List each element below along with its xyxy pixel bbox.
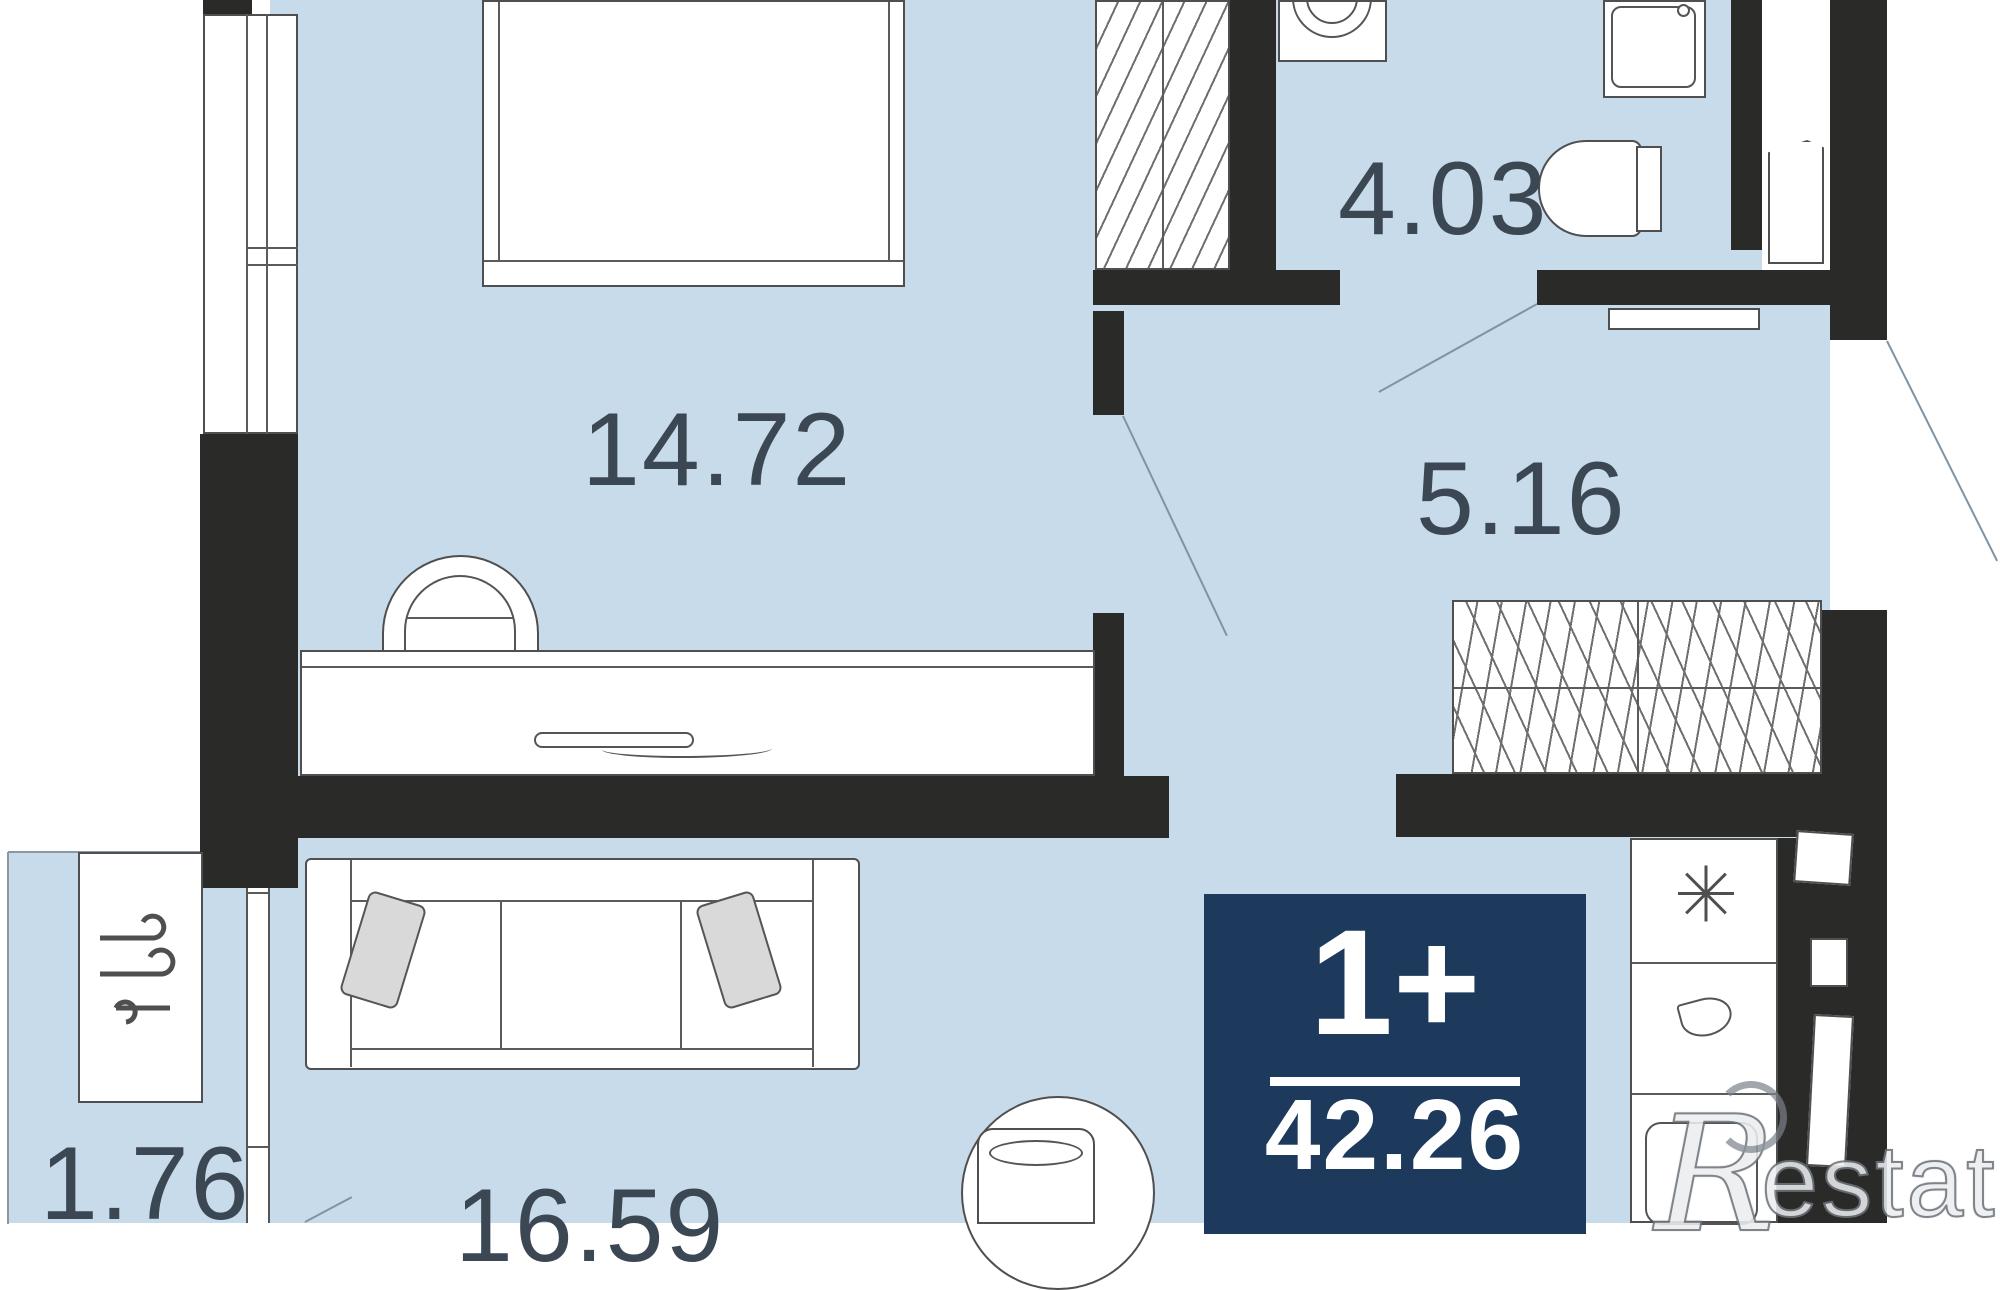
sofa-seat-divider	[680, 900, 682, 1050]
sofa-front-line	[350, 1048, 814, 1050]
frame-tick	[248, 1146, 268, 1148]
frame-tick	[248, 892, 268, 894]
window-frame-line	[246, 14, 248, 434]
badge-total-area: 42.26	[1204, 1085, 1586, 1185]
area-label-balcony: 1.76	[40, 1132, 250, 1236]
cabinet-panel	[1810, 938, 1848, 987]
area-label-living-kitchen: 16.59	[455, 1174, 725, 1278]
sofa-armrest-line	[812, 860, 814, 1067]
area-label-hallway: 5.16	[1416, 447, 1626, 551]
floor-plan: 14.72 4.03 5.16 1.76 16.59 1+ 42.26 Rest…	[0, 0, 2000, 1223]
toilet-tank	[1636, 146, 1662, 232]
window-frame-line	[266, 14, 268, 434]
watermark-swirl-icon	[1715, 1081, 1787, 1153]
washing-machine-icon	[1278, 0, 1387, 62]
sink-basin	[1611, 6, 1696, 88]
wall-segment	[1731, 0, 1762, 250]
desk-handle-curve	[602, 740, 772, 758]
watermark-restate: Restate	[1655, 1095, 2000, 1255]
sink-tap	[1677, 4, 1690, 17]
wall-segment	[1230, 0, 1276, 270]
sink-icon	[1603, 0, 1706, 98]
entrance-door-leaf	[1768, 140, 1824, 264]
snowflake-asterisk-icon	[1676, 866, 1736, 926]
wind-icon	[92, 904, 192, 1044]
wardrobe-icon	[1452, 600, 1822, 774]
bedroom-window	[203, 14, 298, 434]
sofa-pillow	[695, 890, 784, 1011]
wardrobe-icon	[1095, 0, 1230, 270]
wardrobe-divider	[1162, 2, 1164, 268]
desk-edge-line	[302, 666, 1093, 668]
bed	[482, 0, 905, 287]
balcony-side-line	[7, 852, 9, 1224]
desk-chair-inner	[404, 575, 516, 653]
sofa-seat-divider	[500, 900, 502, 1050]
bed-rail	[498, 2, 500, 260]
area-label-bedroom: 14.72	[582, 398, 852, 502]
desk	[300, 650, 1095, 776]
desk-chair-line	[406, 617, 514, 619]
wall-segment	[1093, 613, 1124, 776]
dining-chair	[977, 1128, 1095, 1224]
air-conditioner	[78, 852, 203, 1103]
wall-segment	[200, 434, 298, 888]
entrance-door-swing-line	[1886, 341, 1998, 562]
entrance-threshold	[1608, 308, 1760, 330]
droplet-icon	[1676, 992, 1736, 1042]
wall-segment	[1093, 311, 1124, 415]
bed-footboard-line	[484, 260, 903, 262]
cabinet-panel	[1793, 830, 1853, 886]
badge-layout-type: 1+	[1204, 907, 1586, 1057]
window-transom-tick	[246, 264, 298, 266]
sofa	[305, 858, 860, 1070]
wall-segment	[1830, 0, 1887, 340]
window-transom-tick	[246, 247, 298, 249]
toilet-icon	[1538, 140, 1642, 237]
wall-segment	[1093, 270, 1340, 305]
kitchen-cell-divider	[1632, 962, 1776, 964]
bed-rail	[888, 2, 890, 260]
dining-chair-back	[989, 1140, 1083, 1166]
wall-segment	[203, 0, 252, 14]
wardrobe-divider	[1637, 602, 1639, 772]
wall-segment	[1396, 774, 1822, 837]
watermark-text: estate	[1761, 1124, 2000, 1238]
apartment-type-badge: 1+ 42.26	[1204, 894, 1586, 1234]
area-label-bathroom: 4.03	[1338, 147, 1548, 251]
wall-segment	[298, 776, 1169, 838]
